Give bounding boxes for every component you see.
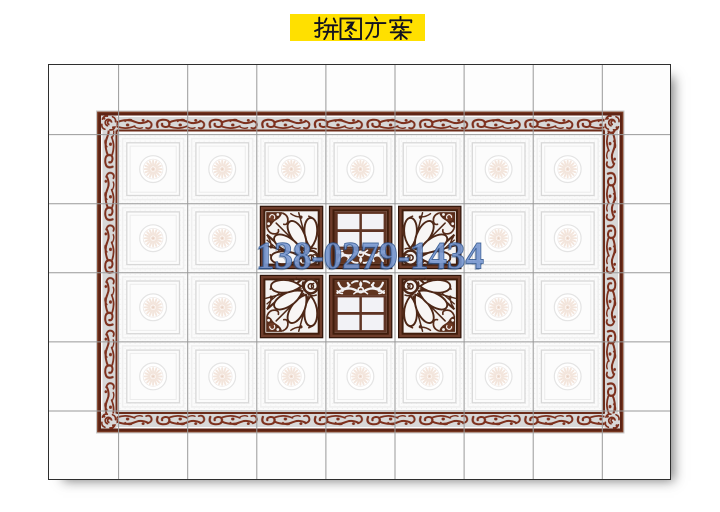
svg-text:138-0279-1434: 138-0279-1434 xyxy=(256,234,484,278)
